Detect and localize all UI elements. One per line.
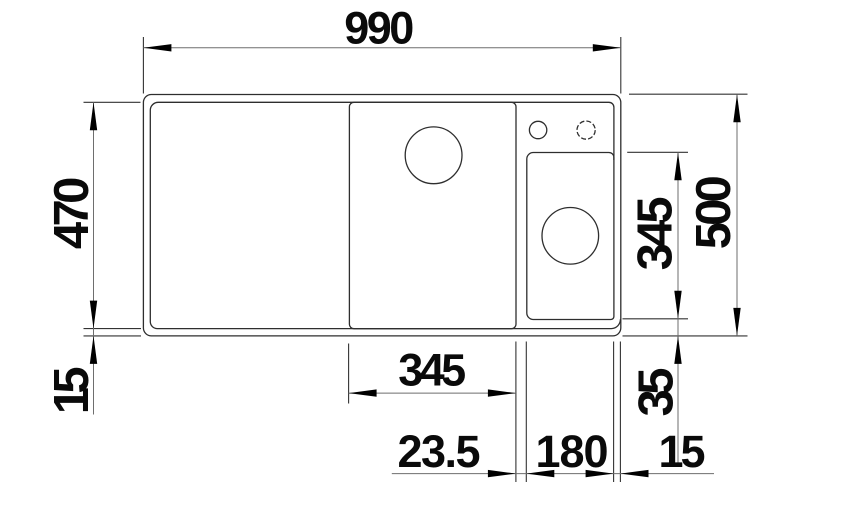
svg-text:500: 500 — [687, 175, 741, 249]
svg-text:345: 345 — [628, 196, 682, 270]
svg-text:990: 990 — [344, 2, 414, 53]
svg-text:15: 15 — [45, 366, 99, 414]
svg-text:345: 345 — [398, 345, 466, 396]
svg-text:15: 15 — [659, 426, 706, 477]
svg-text:23.5: 23.5 — [398, 426, 481, 477]
svg-text:35: 35 — [629, 368, 683, 417]
svg-text:470: 470 — [45, 177, 99, 250]
svg-text:180: 180 — [536, 426, 609, 477]
